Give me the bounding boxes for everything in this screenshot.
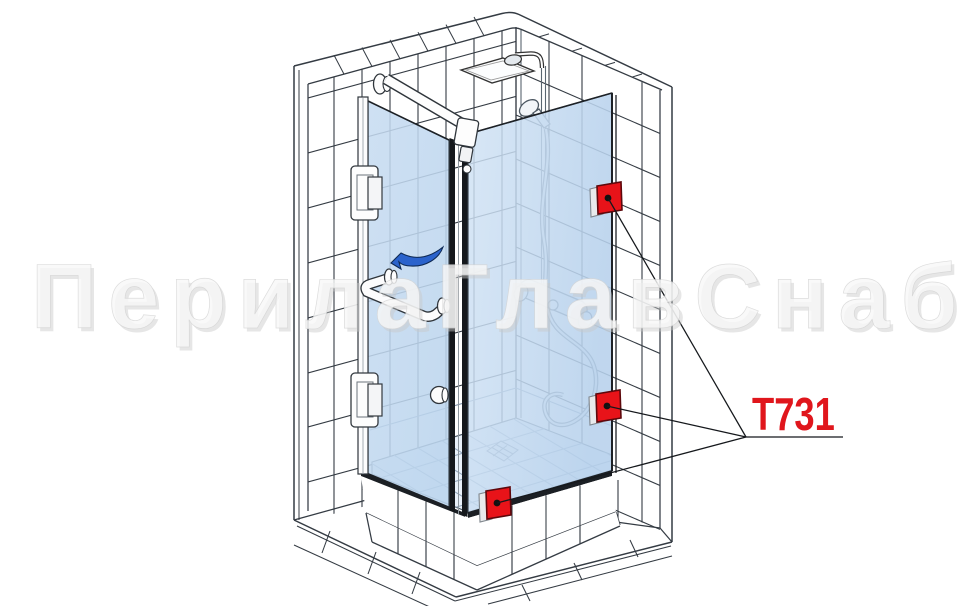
svg-text:ПерилаГлавСнаб: ПерилаГлавСнаб (31, 246, 968, 348)
svg-text:T731: T731 (752, 388, 835, 440)
